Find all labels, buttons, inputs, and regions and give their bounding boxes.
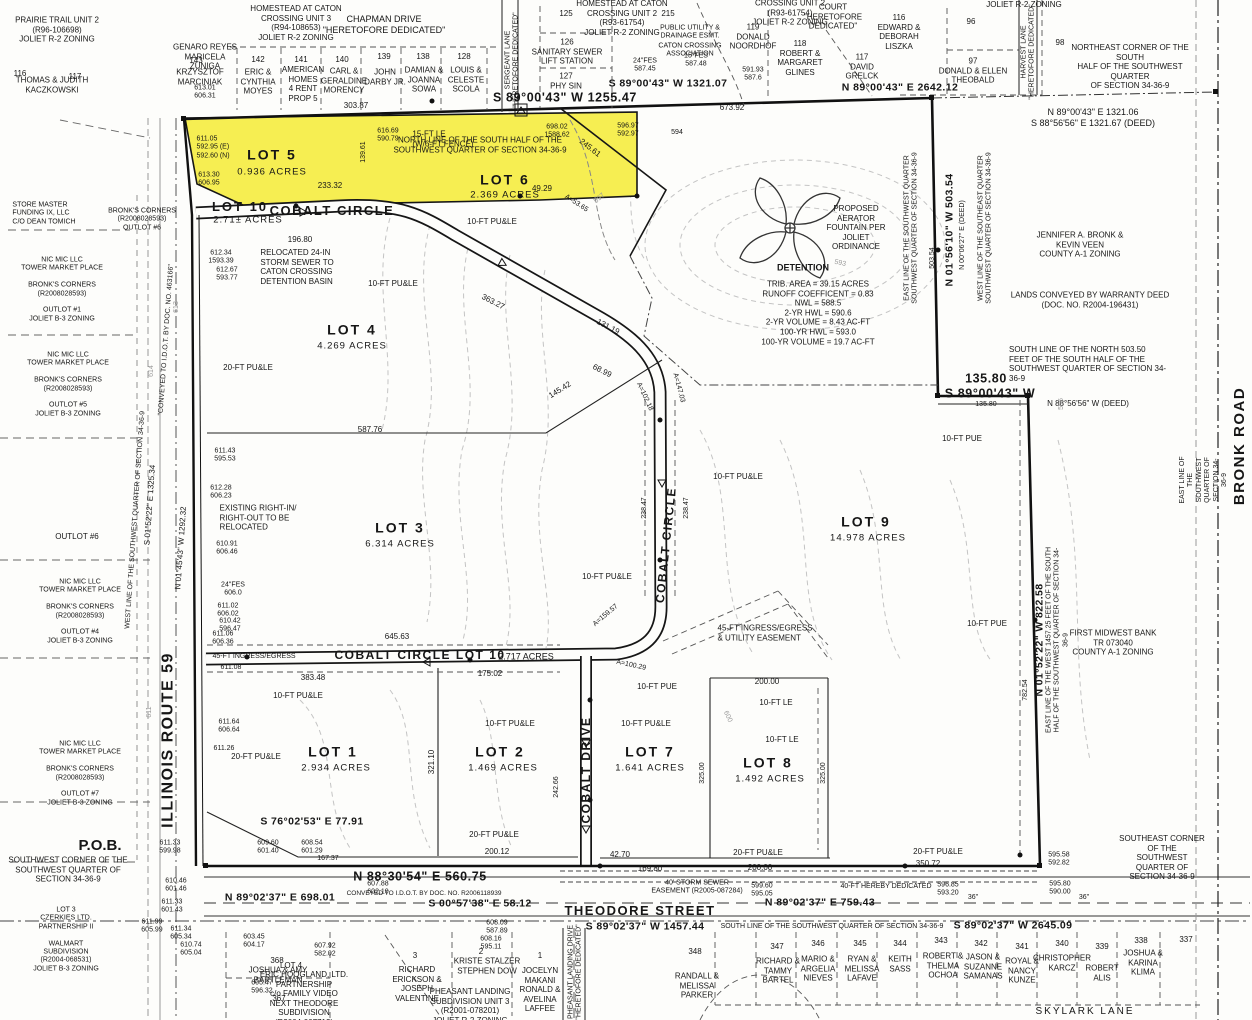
parcel-number: 128 bbox=[457, 52, 470, 62]
bearing-dimension: S 89°00'43" W 1255.47 bbox=[493, 91, 637, 106]
section-line-note: SOUTH LINE OF THE NORTH 503.50 FEET OF T… bbox=[1009, 345, 1171, 383]
spot-elevation: 607.88 602.10 bbox=[367, 881, 388, 898]
easement-label: 10-FT PU&LE bbox=[582, 572, 632, 582]
parcel-label: 127 PHY SIN bbox=[550, 71, 582, 90]
parcel-number: 340 bbox=[1055, 939, 1068, 949]
pob-label: P.O.B. bbox=[78, 837, 121, 855]
access-note: EXISTING RIGHT-IN/ RIGHT-OUT TO BE RELOC… bbox=[220, 504, 297, 533]
lot9-acreage: 14.978 ACRES bbox=[830, 532, 906, 543]
fes-label: 15"FES 587.48 bbox=[684, 53, 708, 70]
spot-elevation: 611.08 bbox=[221, 664, 242, 672]
parcel-number: 138 bbox=[416, 52, 429, 62]
owner-label: 116 EDWARD & DEBORAH LISZKA bbox=[878, 13, 921, 51]
easement-label: 20-FT PU&LE bbox=[469, 830, 519, 840]
outlot-label: NIC MIC LLC TOWER MARKET PLACE BRONK'S C… bbox=[21, 256, 103, 323]
contour-label: 596 bbox=[1058, 398, 1066, 410]
easement-label: 45-FT INGRESS/EGRESS & UTILITY EASEMENT bbox=[718, 623, 813, 642]
street-name: COBALT CIRCLE bbox=[270, 203, 395, 219]
distance-label: 175.02 bbox=[478, 669, 502, 679]
spot-elevation: 596.85 593.20 bbox=[937, 882, 958, 899]
lot7-acreage: 1.641 ACRES bbox=[615, 762, 685, 773]
distance-label: 383.48 bbox=[301, 673, 325, 683]
outlot-label: NIC MIC LLC TOWER MARKET PLACE BRONK'S C… bbox=[39, 578, 121, 645]
parcel-number: 3 bbox=[413, 951, 417, 961]
dedication-label: 40-FT HEREBY DEDICATED bbox=[840, 883, 931, 891]
owner-label: ROBERT & THELMA OCHOA bbox=[923, 952, 964, 981]
spot-elevation: 611.64 606.64 bbox=[218, 719, 239, 736]
spot-elevation: 613.30 606.95 bbox=[198, 172, 219, 189]
detention-data: TRIB. AREA = 39.15 ACRES RUNOFF COEFFICE… bbox=[761, 279, 874, 346]
owner-label: STORE MASTER FUNDING IX, LLC C/O DEAN TO… bbox=[12, 201, 75, 226]
street-name: COBALT CIRCLE LOT 10 bbox=[334, 648, 505, 662]
section-line-note: SOUTH LINE OF THE SOUTHWEST QUARTER OF S… bbox=[721, 923, 944, 931]
spot-elevation: 611.33 599.98 bbox=[159, 840, 180, 857]
parcel-number: 345 bbox=[853, 939, 866, 949]
contour-lines bbox=[300, 140, 1090, 848]
street-name: COURT "HERETOFORE DEDICATED" bbox=[804, 3, 862, 32]
distance-label: 350.72 bbox=[916, 859, 940, 869]
bearing-dimension: S 89°02'37" W 1457.44 bbox=[586, 921, 705, 934]
outlot-label: NIC MIC LLC TOWER MARKET PLACE BRONK'S C… bbox=[39, 740, 121, 807]
spot-elevation: 595.58 592.82 bbox=[1048, 852, 1069, 869]
distance-label: 782.54 bbox=[1022, 679, 1030, 700]
bearing-dimension: S 89°00'43" W bbox=[945, 387, 1036, 402]
owner-label: CARL & GERALDINE MORENCY bbox=[321, 67, 367, 96]
easement-label: 10-FT PU&LE bbox=[273, 691, 323, 701]
bearing-dimension: N 89°02'37" E 698.01 bbox=[225, 892, 335, 905]
spot-elevation: 607.92 582.02 bbox=[314, 943, 335, 960]
easement-label: 15-FT LE (W/6-FT FENCE) bbox=[412, 129, 473, 148]
spot-elevation: 611.34 605.34 bbox=[170, 926, 191, 943]
parcel-number: 341 bbox=[1015, 942, 1028, 952]
owner-label: ERIC & CYNTHIA MOYES bbox=[240, 68, 275, 97]
street-name: ILLINOIS ROUTE 59 bbox=[158, 652, 177, 828]
lot9-title: LOT 9 bbox=[841, 514, 891, 531]
distance-label: 242.66 bbox=[553, 776, 561, 797]
easement-label: PUBLIC UTILITY & DRAINAGE ESMT. bbox=[660, 25, 720, 42]
bearing-dimension: N 89°00'43" E 1321.06 S 88°56'56" E 1321… bbox=[1031, 107, 1155, 129]
distance-label: 135.80 bbox=[965, 372, 1007, 387]
aerator-note: PROPOSED AERATOR FOUNTAIN PER JOLIET ORD… bbox=[827, 204, 886, 252]
parcel-number: 139 bbox=[377, 52, 390, 62]
owner-label: JOSHUA & KARINA KLIMA bbox=[1123, 949, 1163, 978]
spot-elevation: 611.33 601.43 bbox=[161, 899, 182, 916]
distance-label: 42.70 bbox=[610, 850, 630, 860]
spot-elevation: 591.93 587.6 bbox=[742, 67, 763, 84]
distance-label: 321.10 bbox=[427, 750, 437, 774]
parcel-number: 98 bbox=[1056, 38, 1065, 48]
section-line-note: EAST LINE OF THE SOUTHWEST QUARTER OF SE… bbox=[1179, 456, 1229, 504]
detention-title: DETENTION bbox=[777, 263, 829, 274]
owner-label: CHRISTOPHER KARCZ bbox=[1033, 953, 1091, 972]
owner-label: AMERICAN HOMES 4 RENT PROP 5 bbox=[282, 65, 324, 103]
distance-label: 238.47 bbox=[683, 497, 691, 518]
bearing-dimension: N 01°56'10" W 503.54 bbox=[944, 173, 957, 286]
distance-label: 325.00 bbox=[820, 762, 828, 783]
subdivision-label: HOMESTEAD AT CATON CROSSING UNIT 2 (R93-… bbox=[576, 0, 667, 37]
parcel-number: 339 bbox=[1095, 942, 1108, 952]
corner-note: NORTHEAST CORNER OF THE SOUTH HALF OF TH… bbox=[1069, 43, 1191, 91]
owner-label: ROBERT ALIS bbox=[1085, 963, 1118, 982]
spot-elevation: 610.46 601.46 bbox=[165, 878, 186, 895]
easement-label: 40' STORM SEWER EASEMENT (R2005-087284) bbox=[651, 880, 742, 897]
bearing-dimension: S 89°00'43" W 1321.07 bbox=[609, 78, 728, 91]
deed-note: LANDS CONVEYED BY WARRANTY DEED (DOC. NO… bbox=[1011, 290, 1170, 309]
lot1-title: LOT 1 bbox=[308, 744, 358, 761]
street-name: PHEASANT LANDING DRIVE "HERETOFORE DEDIC… bbox=[568, 924, 585, 1019]
lot6-title: LOT 6 bbox=[480, 172, 530, 189]
parcel-number: 143 bbox=[189, 56, 202, 66]
street-name: THEODORE STREET bbox=[564, 903, 715, 919]
spot-elevation: 611.99 605.99 bbox=[141, 919, 162, 936]
bearing-dimension: N 01°52'22" W 822.58 bbox=[1034, 583, 1047, 696]
storm-sewer-note: RELOCATED 24-IN STORM SEWER TO CATON CRO… bbox=[260, 248, 333, 286]
parcel-number: 141 bbox=[294, 55, 307, 65]
owner-label: LOT 3 CZERKIES LTD. PARTNERSHIP II WALMA… bbox=[33, 906, 99, 973]
distance-label: 238.47 bbox=[641, 497, 649, 518]
distance-label: 167.37 bbox=[317, 855, 338, 863]
street-name: COBALT DRIVE bbox=[579, 716, 593, 823]
owner-label: JENNIFER A. BRONK & KEVIN VEEN COUNTY A-… bbox=[1037, 231, 1124, 260]
distance-label: 139.61 bbox=[360, 141, 368, 162]
owner-label: 119 DONALD NOORDHOF bbox=[730, 23, 777, 52]
lot8-acreage: 1.492 ACRES bbox=[735, 773, 805, 784]
lot3-acreage: 6.314 ACRES bbox=[365, 538, 435, 549]
prairie-trail-label: PRAIRIE TRAIL UNIT 2 (R96-106698) JOLIET… bbox=[15, 16, 99, 45]
owner-label: LOUIS & CELESTE SCOLA bbox=[448, 66, 484, 95]
distance-label: 135.80 bbox=[975, 401, 996, 409]
lot10-acreage: 2.717 ACRES bbox=[498, 652, 554, 663]
section-line-note: WEST LINE OF THE SOUTHEAST QUARTER SOUTH… bbox=[978, 152, 995, 303]
bearing-dimension: N 00°06'27" E (DEED) bbox=[959, 200, 967, 270]
owner-label: KRISTE STALZER STEPHEN DOW bbox=[454, 956, 521, 975]
spot-elevation: 608.16 595.11 bbox=[480, 936, 501, 953]
pipe-size-label: 36" bbox=[968, 894, 978, 902]
easement-label: 10-FT PUE bbox=[967, 619, 1007, 629]
bearing-dimension: N 89°02'37" E 759.43 bbox=[765, 897, 875, 910]
spot-elevation: 609.60 601.40 bbox=[257, 840, 278, 857]
distance-label: 303.87 bbox=[344, 101, 368, 111]
easement-label: 10-FT PU&LE bbox=[368, 279, 418, 289]
distance-label: 196.80 bbox=[288, 235, 312, 245]
parcel-number: 346 bbox=[811, 939, 824, 949]
spot-elevation: 610.74 605.04 bbox=[180, 942, 201, 959]
lot4-title: LOT 4 bbox=[327, 322, 377, 339]
outlot-label: BRONK'S CORNERS (R2008028593) OUTLOT #6 bbox=[108, 207, 176, 232]
fes-label: 24"FES 606.0 bbox=[221, 582, 245, 599]
contour-label: 614 bbox=[148, 365, 156, 377]
easement-lines bbox=[207, 400, 1020, 858]
parcel-number: 337 bbox=[1179, 935, 1192, 945]
spot-elevation: 612.67 593.77 bbox=[216, 267, 237, 284]
contour-label: 611 bbox=[146, 706, 154, 717]
easement-label: 10-FT PU&LE bbox=[467, 217, 517, 227]
street-name: HARVEST LANE "HERETOFORE DEDICATED" bbox=[1021, 4, 1038, 99]
bearing-dimension: N 89°00'43" E 2642.12 bbox=[842, 82, 958, 95]
parcel-number: 117 bbox=[69, 72, 82, 82]
bearing-dimension: S 89°02'37" W 2645.09 bbox=[954, 920, 1073, 933]
easement-label: 10-FT PU&LE bbox=[713, 472, 763, 482]
parcel-number: 347 bbox=[770, 942, 783, 952]
distance-label: 200.12 bbox=[485, 847, 509, 857]
lot5-title: LOT 5 bbox=[247, 147, 297, 164]
easement-label: 10-FT PUE bbox=[637, 682, 677, 692]
parcel-number: 125 bbox=[559, 9, 572, 19]
owner-label: MARIO & ARGELIA NIEVES bbox=[801, 955, 836, 984]
contour-label: 594 bbox=[671, 129, 683, 137]
street-name: SKYLARK LANE bbox=[1035, 1006, 1134, 1018]
spot-elevation: 613.01 606.31 bbox=[194, 85, 215, 102]
bearing-dimension: S 00°57'38" E 58.12 bbox=[428, 898, 531, 911]
spot-elevation: 599.60 595.05 bbox=[751, 883, 772, 900]
spot-elevation: 596.97 592.97 bbox=[617, 123, 638, 140]
easement-label: 20-FT PU&LE bbox=[913, 847, 963, 857]
lot4-acreage: 4.269 ACRES bbox=[317, 340, 387, 351]
owner-label: KEITH SASS bbox=[888, 954, 912, 973]
contour-label: 613 bbox=[173, 301, 181, 313]
easement-label: 10-FT PU&LE bbox=[485, 719, 535, 729]
distance-label: 645.63 bbox=[385, 632, 409, 642]
lot5-acreage: 0.936 ACRES bbox=[237, 166, 307, 177]
parcel-number: 140 bbox=[335, 55, 348, 65]
owner-label: 118 ROBERT & MARGARET GLINES bbox=[777, 39, 822, 77]
spot-elevation: 595.80 590.00 bbox=[1049, 881, 1070, 898]
owner-label: RANDALL & MELISSA PARKER bbox=[675, 972, 719, 1001]
easement-label: 10-FT LE bbox=[765, 735, 798, 745]
owner-label: DAMIAN & JOANNA SOWA bbox=[405, 66, 444, 95]
parcel-number: 215 bbox=[661, 9, 674, 19]
distance-label: 673.92 bbox=[720, 103, 744, 113]
owner-label: RYAN & MELISSA LAFAVE bbox=[845, 955, 880, 984]
corner-note: SOUTHEAST CORNER OF THE SOUTHWEST QUARTE… bbox=[1117, 834, 1207, 882]
parcel-number: 1 bbox=[538, 951, 542, 961]
lot2-title: LOT 2 bbox=[475, 744, 525, 761]
parcel-number: 343 bbox=[934, 936, 947, 946]
pipe-size-label: 36" bbox=[1079, 894, 1089, 902]
parcel-number: 342 bbox=[974, 939, 987, 949]
owner-label: JASON & SUZANNE SAMANAS bbox=[963, 953, 1002, 982]
lot8-title: LOT 8 bbox=[743, 755, 793, 772]
fes-label: 24"FES 587.45 bbox=[633, 58, 657, 75]
owner-label: 117 DAVID GRELCK bbox=[846, 53, 879, 82]
distance-label: 200.00 bbox=[755, 677, 779, 687]
owner-label: JOCELYN MAKANI RONALD & AVELINA LAFFEE bbox=[520, 966, 561, 1014]
bearing-dimension: S 76°02'53" E 77.91 bbox=[260, 816, 363, 829]
lot10-title: LOT 10 bbox=[212, 199, 268, 215]
easement-label: 10-FT PUE bbox=[942, 434, 982, 444]
outlot-label: OUTLOT #6 bbox=[55, 532, 98, 542]
lot1-acreage: 2.934 ACRES bbox=[301, 762, 371, 773]
section-line-note: EAST LINE OF THE SOUTHWEST QUARTER SOUTH… bbox=[904, 152, 921, 303]
outlot-label: NIC MIC LLC TOWER MARKET PLACE BRONK'S C… bbox=[27, 351, 109, 418]
spot-elevation: 612.28 606.23 bbox=[210, 485, 231, 502]
subdivision-label: PHEASANT LANDING SUBDIVISION UNIT 3 (R20… bbox=[430, 987, 511, 1020]
street-name: BRONK ROAD bbox=[1231, 387, 1249, 505]
parcel-number: 348 bbox=[688, 947, 701, 957]
distance-label: 233.32 bbox=[318, 181, 342, 191]
easement-label: 10-FT LE bbox=[759, 698, 792, 708]
distance-label: 200.00 bbox=[748, 863, 772, 873]
easement-label: 45-FT INGRESS/EGRESS bbox=[212, 653, 295, 661]
easement-label: 20-FT PU&LE bbox=[231, 752, 281, 762]
distance-label: 325.00 bbox=[699, 762, 707, 783]
distance-label: 587.76 bbox=[358, 425, 382, 435]
spot-elevation: 603.45 604.17 bbox=[243, 934, 264, 951]
plat-map: PRAIRIE TRAIL UNIT 2 (R96-106698) JOLIET… bbox=[0, 0, 1252, 1020]
spot-elevation: 611.05 592.95 (E) 592.60 (N) bbox=[196, 135, 229, 160]
distance-label: 169.80 bbox=[638, 864, 662, 874]
easement-label: 20-FT PU&LE bbox=[733, 848, 783, 858]
spot-elevation: 611.43 595.53 bbox=[214, 448, 235, 465]
parcel-number: 338 bbox=[1134, 936, 1147, 946]
owner-label: ERIC HOOGLAND, LTD. PARTNERSHIP c/o FAMI… bbox=[260, 970, 348, 1020]
street-name: CHAPMAN DRIVE "HERETOFORE DEDICATED" bbox=[323, 14, 446, 36]
owner-label: JOHN DARBY JR. bbox=[364, 67, 406, 86]
lot6-acreage: 2.369 ACRES bbox=[470, 189, 540, 200]
spot-elevation: 608.09 587.89 bbox=[486, 920, 507, 937]
section-line-note: EAST LINE OF THE WEST 1457.25 FEET OF TH… bbox=[1045, 543, 1070, 737]
lot3-title: LOT 3 bbox=[375, 520, 425, 537]
owner-label: RICHARD & TAMMY BARTEL bbox=[756, 957, 800, 986]
lot7-title: LOT 7 bbox=[625, 744, 675, 761]
zoning-label: JOLIET R-2 ZONING bbox=[986, 0, 1061, 10]
lot2-acreage: 1.469 ACRES bbox=[468, 762, 538, 773]
spot-elevation: 611.06 606.36 bbox=[212, 631, 233, 648]
parcel-number: 142 bbox=[251, 55, 264, 65]
spot-elevation: 610.91 606.46 bbox=[216, 541, 237, 558]
easement-label: 10-FT PU&LE bbox=[621, 719, 671, 729]
owner-label: FIRST MIDWEST BANK TR 073040 COUNTY A-1 … bbox=[1070, 629, 1157, 658]
parcel-label: 126 SANITARY SEWER LIFT STATION bbox=[532, 38, 603, 67]
easement-label: 20-FT PU&LE bbox=[223, 363, 273, 373]
parcel-number: 344 bbox=[893, 939, 906, 949]
distance-label: 503.54 bbox=[929, 247, 937, 268]
spot-elevation: 612.34 1593.39 bbox=[208, 250, 233, 267]
parcel-number: 96 bbox=[967, 17, 976, 27]
corner-note: SOUTHWEST CORNER OF THE SOUTHWEST QUARTE… bbox=[8, 856, 127, 885]
